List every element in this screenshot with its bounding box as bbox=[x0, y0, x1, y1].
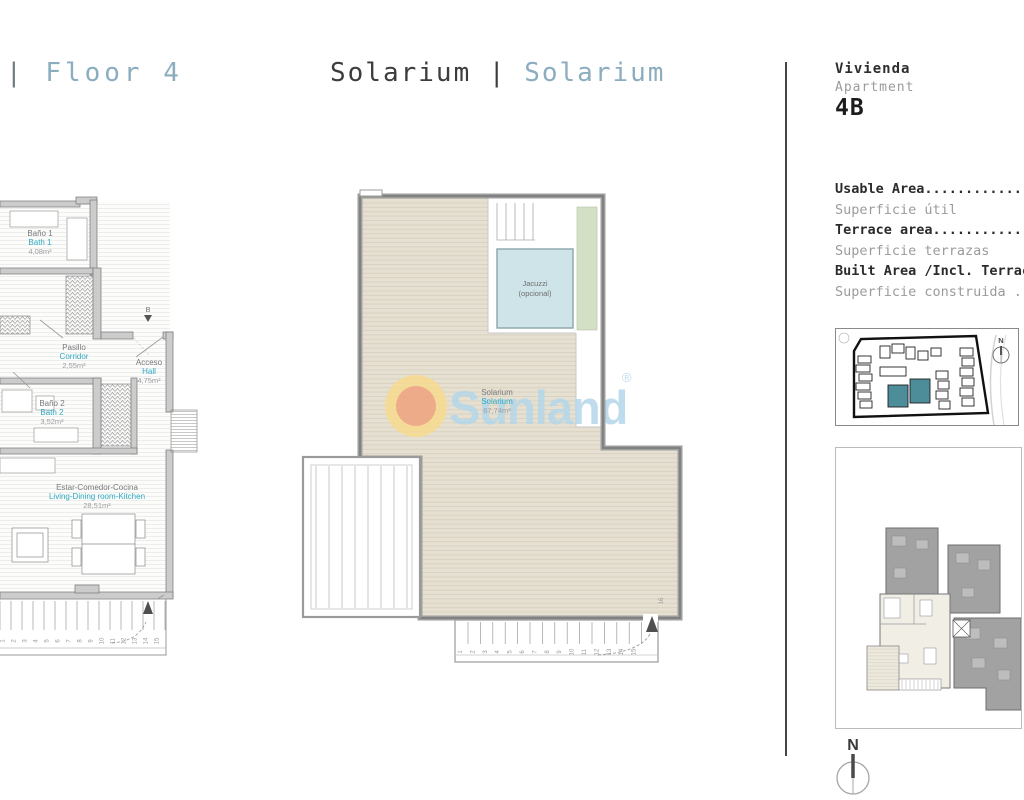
svg-text:12: 12 bbox=[594, 648, 600, 655]
solarium-floor-plan: Jacuzzi (opcional) Sunland ® 123456 bbox=[295, 185, 727, 677]
room-area: 67,74m² bbox=[483, 406, 511, 415]
unit-label-es: Vivienda bbox=[835, 61, 910, 77]
stairs: 123456789101112131415 bbox=[0, 599, 166, 655]
usable-area-label-es: Superficie útil bbox=[835, 200, 1024, 221]
floor-title-label: Floor 4 bbox=[45, 58, 183, 88]
solarium-labels: Solarium Solarium 67,74m² bbox=[481, 388, 513, 415]
brochure-page: | Floor 4 Solarium | Solarium Vivienda A… bbox=[0, 0, 1024, 800]
room-title: Solarium | Solarium bbox=[330, 58, 665, 88]
section-marker-label: B bbox=[145, 305, 150, 314]
room-label: Living-Dining room-Kitchen bbox=[49, 492, 145, 501]
road-line bbox=[990, 335, 996, 425]
north-label: N bbox=[998, 336, 1003, 345]
svg-text:14: 14 bbox=[144, 637, 150, 644]
terrace-area-label: Terrace area..................... bbox=[835, 220, 1024, 241]
room-area: 4,75m² bbox=[137, 376, 161, 385]
area-summary: Usable Area...................... Superf… bbox=[835, 179, 1024, 302]
watermark-sun-inner bbox=[396, 386, 436, 426]
site-marker-circle bbox=[839, 333, 849, 343]
site-plan: N bbox=[835, 328, 1019, 426]
room-title-es: Solarium bbox=[330, 58, 471, 88]
built-area-label: Built Area /Incl. Terrace bbox=[835, 261, 1024, 282]
watermark-registered: ® bbox=[622, 370, 632, 385]
svg-text:11: 11 bbox=[582, 648, 588, 655]
room-label: Baño 2 bbox=[39, 399, 65, 408]
step-16-label: 16 bbox=[659, 597, 665, 604]
balcony bbox=[171, 410, 197, 452]
title-pipe: | bbox=[6, 58, 26, 88]
jacuzzi-label: (opcional) bbox=[519, 289, 552, 298]
svg-text:10: 10 bbox=[570, 648, 576, 655]
room-area: 3,52m² bbox=[40, 417, 64, 426]
highlighted-terrace bbox=[867, 646, 899, 690]
svg-text:13: 13 bbox=[133, 637, 139, 644]
room-title-en: Solarium bbox=[524, 58, 665, 88]
key-plan bbox=[835, 447, 1022, 729]
room-label: Bath 2 bbox=[40, 408, 64, 417]
svg-text:13: 13 bbox=[607, 648, 613, 655]
highlighted-unit bbox=[867, 594, 950, 690]
svg-text:15: 15 bbox=[155, 637, 161, 644]
planter-strip bbox=[577, 207, 597, 330]
unit-label-en: Apartment bbox=[835, 80, 914, 95]
jacuzzi: Jacuzzi (opcional) bbox=[497, 249, 573, 328]
usable-area-label: Usable Area...................... bbox=[835, 179, 1024, 200]
north-label: N bbox=[847, 737, 859, 754]
room-label: Pasillo bbox=[62, 343, 86, 352]
room-area: 4,08m² bbox=[28, 247, 52, 256]
elevator bbox=[953, 620, 970, 637]
unit-number: 4B bbox=[835, 95, 865, 121]
room-label: Solarium bbox=[481, 397, 513, 406]
panel-divider bbox=[785, 62, 787, 756]
room-label: Baño 1 bbox=[27, 229, 53, 238]
room-label: Estar-Comedor-Cocina bbox=[56, 483, 138, 492]
room-label: Bath 1 bbox=[28, 238, 52, 247]
svg-text:15: 15 bbox=[632, 648, 638, 655]
room-label: Acceso bbox=[136, 358, 163, 367]
pergola bbox=[303, 457, 420, 617]
room-area: 2,55m² bbox=[62, 361, 86, 370]
room-label: Hall bbox=[142, 367, 156, 376]
north-compass: N bbox=[832, 734, 876, 798]
terrace-area-label-es: Superficie terrazas bbox=[835, 241, 1024, 262]
room-label: Corridor bbox=[60, 352, 89, 361]
room-title-pipe: | bbox=[489, 58, 507, 88]
apartment-floor-plan: 123456789101112131415 B Baño 1 Bath 1 4,… bbox=[0, 195, 212, 665]
svg-text:10: 10 bbox=[100, 637, 106, 644]
floor-title: | Floor 4 bbox=[6, 58, 183, 88]
room-area: 28,51m² bbox=[83, 501, 111, 510]
built-area-label-es: Superficie construida ...... bbox=[835, 282, 1024, 303]
room-label: Solarium bbox=[481, 388, 513, 397]
jacuzzi-label: Jacuzzi bbox=[522, 279, 547, 288]
